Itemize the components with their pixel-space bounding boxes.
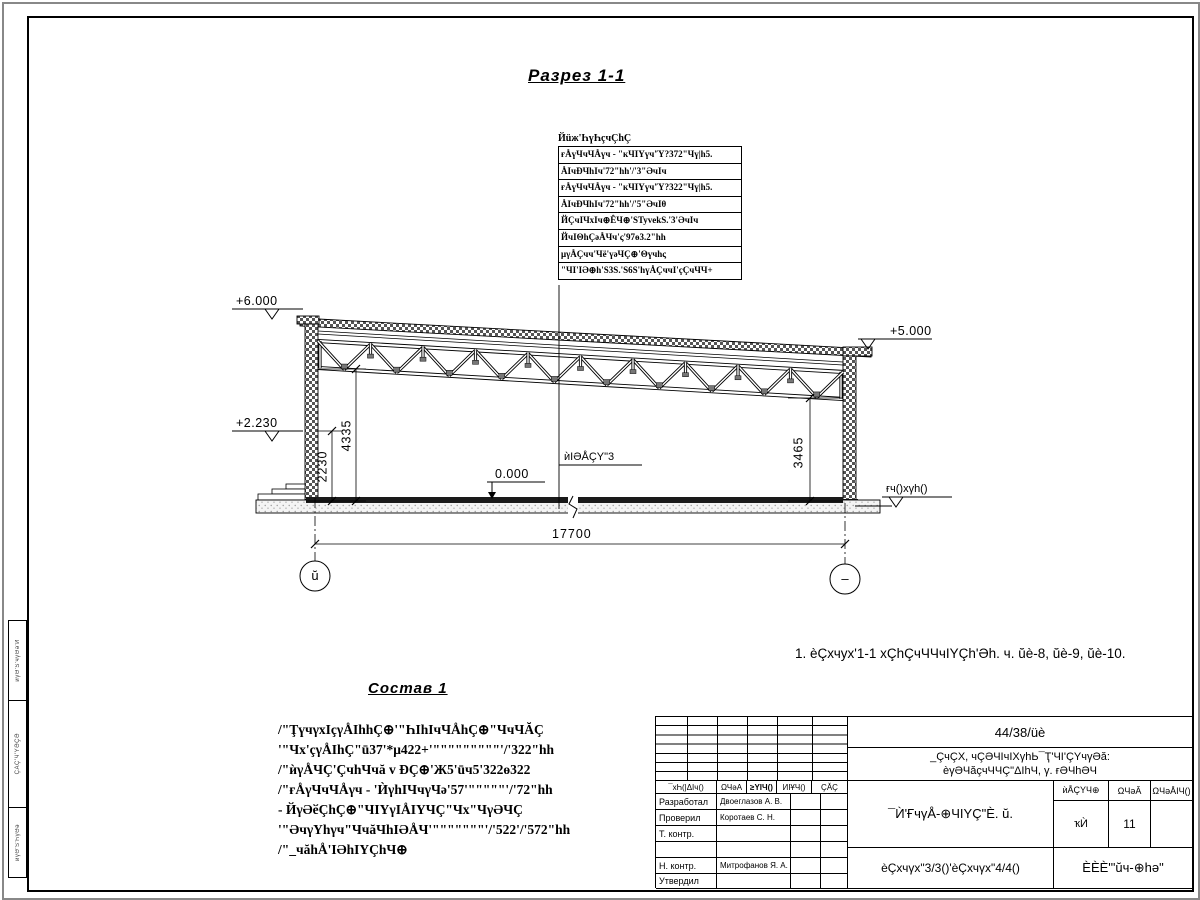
tb-col-header: ≥YIЧ() bbox=[747, 781, 777, 794]
tb-role: Н. контр. bbox=[656, 858, 717, 874]
callout-row: ЙчIΘhÇәÅЧч'ς'97ө3.2"hh bbox=[558, 229, 742, 247]
level-mark-ground bbox=[882, 497, 952, 507]
tb-role: Разработал bbox=[656, 794, 717, 810]
callout-row: ÅIчÐЧhIч'72"hh'/'5"ӘчIθ bbox=[558, 196, 742, 214]
tb-sign bbox=[791, 810, 821, 826]
tb-name: Двоеглазов А. В. bbox=[717, 794, 791, 810]
level-plus6000-text: +6.000 bbox=[236, 294, 278, 308]
tb-date bbox=[821, 794, 848, 810]
level-plus5000-text: +5.000 bbox=[890, 324, 932, 338]
change-table-line bbox=[812, 717, 813, 781]
ground-label: ғч()хγh() bbox=[886, 483, 928, 495]
change-table-line bbox=[717, 717, 718, 781]
tb-name bbox=[717, 842, 791, 858]
tb-col-header: ΩЧәА bbox=[717, 781, 747, 794]
tb-col-header: ИIҰЧ() bbox=[777, 781, 812, 794]
callout-row: ғÅүЧчЧÅүч - "кЧIYүч'Ύ?322"Чү|h5. bbox=[558, 179, 742, 197]
sostav-line: /"ŢүчγхIçγÅIhhÇ⊕'"ҺIhIчЧÅhÇ⊕"ЧчЧĂÇ bbox=[278, 720, 570, 740]
callout-header: Йüж'ҺүҺçчÇhÇ bbox=[558, 133, 742, 144]
tb-object-line2: èγӘЧăçчЧЧÇ"ΔIhЧ, γ. ғӘЧhӘЧ bbox=[943, 764, 1097, 778]
tb-sheet-number: 11 bbox=[1109, 801, 1151, 848]
tb-date bbox=[821, 874, 848, 889]
tb-stage-value: ҡЍ bbox=[1054, 801, 1109, 848]
tb-sign bbox=[791, 826, 821, 842]
sostav-line: /"ѝγÅЧÇ'ÇчhЧчă v ÐÇ⊕'Ж5'ūч5'322ө322 bbox=[278, 760, 570, 780]
dim-4335-text: 4335 bbox=[340, 408, 353, 464]
callout-row: "ЧI'IӘ⊕h'Ѕ3Ѕ.'Ѕ6Ѕ'hүÅÇччI'çÇчЧЧ+ bbox=[558, 262, 742, 280]
sostav-line: - ЙγӘӗÇhÇ⊕"ЧIYγIÅIYЧÇ"Чх"ЧγӘЧÇ bbox=[278, 800, 570, 820]
title-block: ¯хҺ(|ΔIч() ΩЧәА ≥YIЧ() ИIҰЧ() ÇĂÇ Разраб… bbox=[655, 716, 1192, 888]
tb-date bbox=[821, 826, 848, 842]
change-table-line bbox=[687, 717, 688, 781]
tb-date bbox=[821, 858, 848, 874]
callout-row: ÅIчÐЧhIч'72"hh'/'3"ӘчIч bbox=[558, 163, 742, 181]
note-1: 1. èÇхчух'1-1 хÇhÇчЧЧчIYÇh'Әh. ч. ŭè-8, … bbox=[795, 646, 1126, 661]
tb-name: Митрофанов Я. А. bbox=[717, 858, 791, 874]
section-title: Разрез 1-1 bbox=[528, 66, 625, 86]
tb-role: Проверил bbox=[656, 810, 717, 826]
tb-sign bbox=[791, 874, 821, 889]
right-wall bbox=[841, 347, 872, 510]
floor-label: ѝIӘÅÇY"3 bbox=[564, 451, 614, 463]
tb-col-header: ¯хҺ(|ΔIч() bbox=[656, 781, 717, 794]
tb-role: Т. контр. bbox=[656, 826, 717, 842]
tb-company: ÈÈÈ'"ŭч-⊕hә" bbox=[1054, 848, 1193, 889]
level-mark-plus5000 bbox=[858, 339, 932, 349]
tb-doc-title: ¯Ѝ'ҒчγÅ-⊕ЧIYÇ"È. ŭ. bbox=[848, 781, 1054, 848]
change-table-line bbox=[747, 717, 748, 781]
tb-stage-header: ΩЧәÅIЧ() bbox=[1151, 781, 1193, 801]
level-mark-plus2230 bbox=[232, 431, 303, 441]
callout-row: μγÅÇчч'Чё'үәЧÇ⊕'Θүчhς bbox=[558, 246, 742, 264]
callout-row: ғÅүЧчЧÅүч - "кЧIYүч'Ύ?372"Чү|h5. bbox=[558, 146, 742, 164]
dim-2230-text: 2230 bbox=[316, 439, 329, 495]
tb-code: 44/38/üè bbox=[848, 717, 1193, 748]
tb-object: _ÇчÇХ, чÇӘЧIчIХγhЬ¯Ҭ'ЧI'ÇYчγӘă: èγӘЧăçчЧ… bbox=[848, 748, 1193, 781]
tb-name bbox=[717, 826, 791, 842]
tb-col-header: ÇĂÇ bbox=[812, 781, 848, 794]
tb-object-line1: _ÇчÇХ, чÇӘЧIчIХγhЬ¯Ҭ'ЧI'ÇYчγӘă: bbox=[930, 750, 1110, 764]
tb-stage-header: ѝÅÇYЧ⊕ bbox=[1054, 781, 1109, 801]
tb-sheet-label: èÇхчγх"3/3()'èÇхчγх"4/4() bbox=[848, 848, 1054, 889]
roof-callout: Йüж'ҺүҺçчÇhÇ ғÅүЧчЧÅүч - "кЧIYүч'Ύ?372"Ч… bbox=[558, 133, 742, 280]
sostav-line: /"ғÅγЧчЧÅγч - 'ЍγhIЧчγЧә'57'"""""'/'72"h… bbox=[278, 780, 570, 800]
dim-17700-text: 17700 bbox=[552, 527, 592, 541]
tb-name bbox=[717, 874, 791, 889]
tb-stage-header: ΩЧәĂ bbox=[1109, 781, 1151, 801]
drawing-sheet: ѝγӘ'Ѕ'чγӘә'И ÇĂÇ'Ч'YӘҪӘ ѝγӘ'Ѕ'ҺγӘә bbox=[0, 0, 1200, 900]
dim-3465-text: 3465 bbox=[792, 425, 805, 481]
tb-sign bbox=[791, 842, 821, 858]
change-table bbox=[656, 717, 848, 781]
sostav-title: Состав 1 bbox=[368, 680, 448, 697]
change-table-line bbox=[777, 717, 778, 781]
tb-role: Утвердил bbox=[656, 874, 717, 889]
sostav-block: /"ŢүчγхIçγÅIhhÇ⊕'"ҺIhIчЧÅhÇ⊕"ЧчЧĂÇ '"Чх'… bbox=[278, 720, 570, 860]
level-zero-text: 0.000 bbox=[495, 467, 529, 481]
tb-date bbox=[821, 842, 848, 858]
tb-role bbox=[656, 842, 717, 858]
level-plus2230-text: +2.230 bbox=[236, 416, 278, 430]
sostav-line: '"Чх'çγÅIhÇ"ū37'*μ422+'"""""""""'/'322"h… bbox=[278, 740, 570, 760]
tb-sign bbox=[791, 858, 821, 874]
axis-letter-left: ŭ bbox=[301, 568, 329, 583]
tb-name: Коротаев С. Н. bbox=[717, 810, 791, 826]
level-mark-plus6000 bbox=[232, 309, 303, 319]
tb-sign bbox=[791, 794, 821, 810]
tb-sheets-total bbox=[1151, 801, 1193, 848]
sostav-line: '"ӘчγYhγч"ЧчăЧhIӘÅЧ'"""""""'/'522'/'572"… bbox=[278, 820, 570, 840]
sostav-line: /"_чăhÅ'IӘhIYÇhЧ⊕ bbox=[278, 840, 570, 860]
callout-row: ЙÇчIЧхIч⊕ÊЧ⊕'ЅTyvekЅ.'3'ӘчIч bbox=[558, 212, 742, 230]
tb-date bbox=[821, 810, 848, 826]
level-mark-zero bbox=[487, 482, 545, 499]
axis-letter-right: – bbox=[831, 571, 859, 586]
